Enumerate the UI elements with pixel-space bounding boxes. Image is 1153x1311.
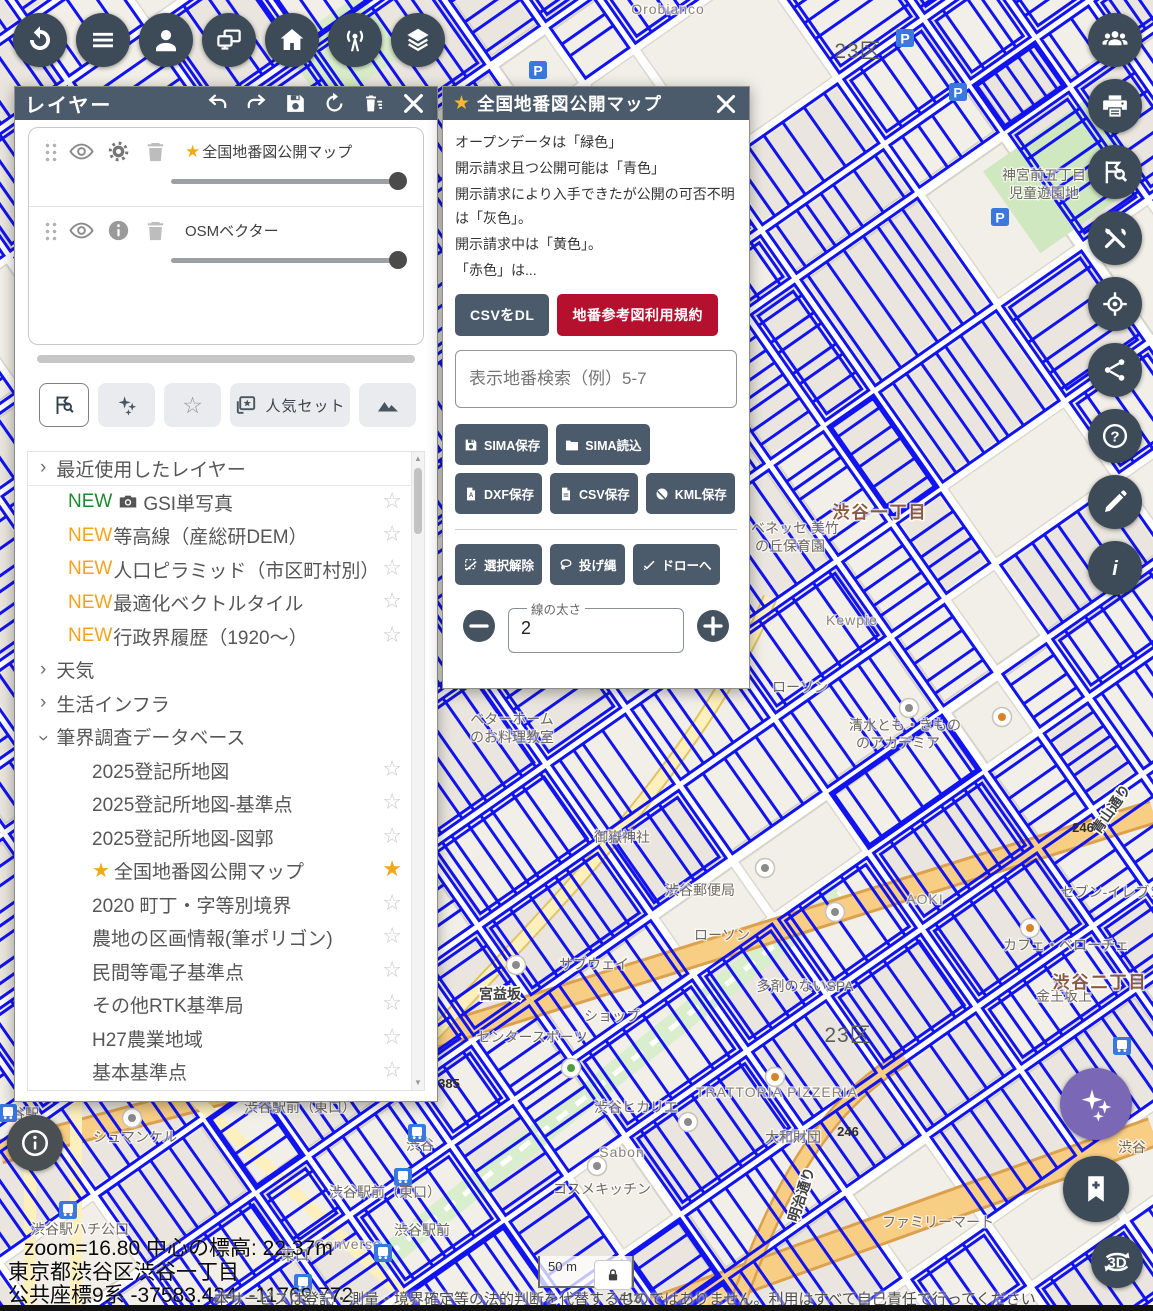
lock-icon xyxy=(604,1266,622,1284)
photo-star-icon xyxy=(234,393,258,417)
3d-rotate-icon: 3D xyxy=(1097,1242,1137,1282)
favorite-star-toggle[interactable]: ☆ xyxy=(382,992,402,1014)
scroll-down-arrow[interactable]: ▼ xyxy=(412,1077,424,1089)
poi-icon xyxy=(766,1068,785,1087)
ai-assistant-button[interactable] xyxy=(1060,1068,1132,1140)
deselect-icon xyxy=(463,557,479,573)
parking-icon: P xyxy=(991,208,1009,226)
layers-panel-title: レイヤー xyxy=(25,89,112,118)
close-icon[interactable] xyxy=(713,91,739,117)
side-locate-button[interactable] xyxy=(1088,277,1142,331)
star-outline-icon: ☆ xyxy=(182,394,203,417)
close-icon[interactable] xyxy=(400,90,427,117)
parking-icon: P xyxy=(949,83,967,101)
star-icon: ★ xyxy=(453,92,471,115)
layer-list-item[interactable]: 基本基準点☆ xyxy=(28,1055,412,1089)
vertical-scrollbar[interactable]: ▲ ▼ xyxy=(411,452,424,1090)
layer-list-item[interactable]: ›最近使用したレイヤー xyxy=(28,452,412,486)
toolbar-layers-button[interactable] xyxy=(391,13,445,67)
new-badge: NEW xyxy=(68,558,112,580)
layer-list-item[interactable]: 農地の区画情報(筆ポリゴン)☆ xyxy=(28,921,412,955)
home-icon xyxy=(277,25,307,55)
layer-list-item[interactable]: ★全国地番図公開マップ★ xyxy=(28,854,412,888)
layer-list-item[interactable]: 民間等電子基準点☆ xyxy=(28,955,412,989)
kml-icon xyxy=(654,486,670,502)
bus-stop-icon xyxy=(59,1201,77,1219)
scroll-up-arrow[interactable]: ▲ xyxy=(412,453,424,465)
favorite-star-toggle[interactable]: ★ xyxy=(382,858,402,880)
toolbar-user-button[interactable] xyxy=(139,13,193,67)
line-width-field[interactable]: 線の太さ 2 xyxy=(508,599,684,653)
remove-layer-trash-icon[interactable] xyxy=(142,217,169,244)
layer-label: ★全国地番図公開マップ xyxy=(185,141,352,162)
layer-list-item[interactable]: NEW等高線（産総研DEM）☆ xyxy=(28,519,412,553)
layer-name: 等高線（産総研DEM） xyxy=(113,522,307,549)
file-dxf-icon: A xyxy=(463,486,479,502)
csv-download-button[interactable]: CSVをDL xyxy=(455,294,549,336)
layer-name: 2020 町丁・字等別境界 xyxy=(92,891,292,918)
layer-list-item[interactable]: 2025登記所地図-基準点☆ xyxy=(28,787,412,821)
tool-sparkles-button[interactable] xyxy=(98,383,155,427)
bus-stop-icon xyxy=(394,1168,412,1186)
layer-list-item[interactable]: NEW行政界履歴（1920〜）☆ xyxy=(28,620,412,654)
layer-name: 基本基準点 xyxy=(92,1058,187,1085)
layer-name: 行政界履歴（1920〜） xyxy=(113,623,307,650)
active-layers-card: ★全国地番図公開マップOSMベクター xyxy=(28,127,424,345)
slider-thumb[interactable] xyxy=(389,172,407,190)
edit-lasso-button[interactable]: 投げ縄 xyxy=(550,544,625,585)
layers-icon xyxy=(403,25,433,55)
favorite-star-toggle[interactable]: ☆ xyxy=(382,892,402,914)
favorite-star-toggle[interactable]: ☆ xyxy=(382,590,402,612)
tools-icon xyxy=(1100,223,1130,253)
favorite-star-toggle[interactable]: ☆ xyxy=(382,490,402,512)
drag-handle-icon[interactable] xyxy=(43,140,58,164)
user-icon xyxy=(151,25,181,55)
toolbar-screen-share-button[interactable] xyxy=(202,13,256,67)
tool-label: 人気セット xyxy=(265,395,345,416)
favorite-star-toggle[interactable]: ☆ xyxy=(382,557,402,579)
menu-icon xyxy=(88,25,118,55)
layer-list-item[interactable]: 2025登記所地図☆ xyxy=(28,754,412,788)
description-line: 開示請求により入手できたが公開の可否不明は「灰色」。 xyxy=(455,182,737,230)
info-icon xyxy=(19,1127,51,1159)
bus-stop-icon xyxy=(1113,1037,1131,1055)
detail-action-buttons: CSVをDL地番参考図利用規約 xyxy=(455,294,737,336)
horizontal-scrollbar[interactable] xyxy=(37,355,415,363)
help-icon: ? xyxy=(1100,421,1130,451)
layer-catalog-list: ›最近使用したレイヤーNEWGSI単写真☆NEW等高線（産総研DEM）☆NEW人… xyxy=(27,451,425,1091)
favorite-star-toggle[interactable]: ☆ xyxy=(382,1026,402,1048)
tool-photo-star-button[interactable]: 人気セット xyxy=(230,383,350,427)
description-line: 「赤色」は... xyxy=(455,258,737,282)
line-width-value: 2 xyxy=(521,618,531,638)
layer-name: 人口ピラミッド（市区町村別） xyxy=(113,556,379,583)
map-search-icon xyxy=(52,393,76,417)
drag-handle-icon[interactable] xyxy=(43,219,58,243)
parcel-search-input[interactable] xyxy=(455,350,737,408)
edit-buttons: 選択解除投げ縄ドローへ xyxy=(455,544,737,585)
scale-label: 50 m xyxy=(548,1259,577,1274)
file-file-csv-button[interactable]: CSV保存 xyxy=(550,473,638,514)
divider xyxy=(455,529,737,530)
mountains-icon xyxy=(376,393,400,417)
bus-stop-icon xyxy=(374,1244,392,1262)
edit-deselect-button[interactable]: 選択解除 xyxy=(455,544,542,585)
bus-stop-icon xyxy=(408,1124,426,1142)
toolbar-refresh-button[interactable] xyxy=(13,13,67,67)
locate-icon xyxy=(1100,289,1130,319)
layer-name: 生活インフラ xyxy=(56,690,169,717)
map-search-icon xyxy=(1100,157,1130,187)
tool-mountains-button[interactable] xyxy=(359,383,416,427)
favorite-star-toggle[interactable]: ☆ xyxy=(382,523,402,545)
parking-icon: P xyxy=(896,29,914,47)
bookmark-add-icon xyxy=(1079,1172,1113,1206)
sparkles-icon xyxy=(115,393,139,417)
favorite-star-toggle[interactable]: ☆ xyxy=(382,758,402,780)
poi-icon xyxy=(1021,919,1040,938)
team-icon xyxy=(1100,25,1130,55)
side-help-button[interactable]: ? xyxy=(1088,409,1142,463)
favorite-star-toggle[interactable]: ☆ xyxy=(382,624,402,646)
terms-button[interactable]: 地番参考図利用規約 xyxy=(557,294,718,336)
chevron-right-icon: › xyxy=(40,457,46,479)
screen-share-icon xyxy=(214,25,244,55)
map-application: Orobianco23区神宮前五丁目児童遊園地渋谷一丁目ベネッセ 美竹の丘保育園… xyxy=(0,0,1153,1311)
map-info-button[interactable] xyxy=(7,1115,63,1171)
poi-icon xyxy=(756,859,775,878)
draw-icon xyxy=(1100,487,1130,517)
layer-name: 農地の区画情報(筆ポリゴン) xyxy=(92,924,333,951)
share-icon xyxy=(1100,355,1130,385)
layer-list-item[interactable]: H27農業地域☆ xyxy=(28,1022,412,1056)
poi-icon xyxy=(826,903,845,922)
layer-name: GSI単写真 xyxy=(143,489,233,516)
line-width-control: 線の太さ 2 xyxy=(455,599,737,653)
layers-panel-header: レイヤー xyxy=(15,87,437,120)
parking-icon: P xyxy=(529,61,547,79)
layer-name: 2025登記所地図-基準点 xyxy=(92,790,293,817)
description-line: 開示請求中は「黄色」。 xyxy=(455,232,737,256)
address-readout: 東京都渋谷区渋谷一丁目 xyxy=(8,1261,353,1285)
file-folder-open-button[interactable]: SIMA読込 xyxy=(556,424,649,465)
file-save-button[interactable]: SIMA保存 xyxy=(455,424,548,465)
layer-list-item[interactable]: NEW人口ピラミッド（市区町村別）☆ xyxy=(28,553,412,587)
remove-layer-trash-icon[interactable] xyxy=(142,138,169,165)
detail-panel-header: ★ 全国地番図公開マップ xyxy=(443,87,749,120)
bottom-bar xyxy=(0,1305,1153,1311)
poi-icon xyxy=(507,956,526,975)
layer-name: 2025登記所地図-図郭 xyxy=(92,824,274,851)
favorite-star-toggle[interactable]: ☆ xyxy=(382,1059,402,1081)
visibility-eye-icon[interactable] xyxy=(68,138,95,165)
new-badge: NEW xyxy=(68,625,112,647)
zoom-elevation-readout: zoom=16.80 中心の標高: 22.37m xyxy=(24,1237,353,1261)
layer-name: 民間等電子基準点 xyxy=(92,958,244,985)
layer-list-item[interactable]: ›筆界調査データベース xyxy=(28,720,412,754)
layer-list-item[interactable]: ›生活インフラ xyxy=(28,687,412,721)
side-team-button[interactable] xyxy=(1088,13,1142,67)
layer-list-item[interactable]: 2020 町丁・字等別境界☆ xyxy=(28,888,412,922)
chevron-down-icon: › xyxy=(32,735,54,741)
tool-star-outline-button[interactable]: ☆ xyxy=(164,383,221,427)
toolbar-broadcast-tower-button[interactable] xyxy=(328,13,382,67)
new-badge: NEW xyxy=(68,491,112,513)
star-icon: ★ xyxy=(92,858,110,883)
favorite-star-toggle[interactable]: ☆ xyxy=(382,959,402,981)
toolbar-home-button[interactable] xyxy=(265,13,319,67)
info-icon: i xyxy=(1100,553,1130,583)
poi-icon xyxy=(588,1157,607,1176)
layer-label: OSMベクター xyxy=(185,220,279,241)
visibility-eye-icon[interactable] xyxy=(68,217,95,244)
layer-name: 筆界調査データベース xyxy=(56,723,245,750)
file-file-dxf-button[interactable]: ADXF保存 xyxy=(455,473,542,514)
favorite-star-toggle[interactable]: ☆ xyxy=(382,925,402,947)
layer-detail-panel: ★ 全国地番図公開マップ オープンデータは「緑色」開示請求且つ公開可能は「青色」… xyxy=(442,86,750,689)
poi-icon xyxy=(123,1109,142,1128)
sparkles-icon xyxy=(1076,1084,1116,1124)
layer-settings-gear-icon[interactable] xyxy=(105,138,132,165)
layer-opacity-slider[interactable] xyxy=(171,179,403,184)
scrollbar-thumb[interactable] xyxy=(414,468,422,534)
save-icon xyxy=(463,437,479,453)
lock-control[interactable] xyxy=(594,1260,632,1290)
layer-list-item[interactable]: その他RTK基準局☆ xyxy=(28,988,412,1022)
camera-icon xyxy=(117,491,139,513)
layers-panel: レイヤー ★全国地番図公開マップOSMベクター ☆人気セット ›最近使用したレイ… xyxy=(14,86,438,1102)
right-toolbar: ?i xyxy=(1088,13,1142,595)
toggle-3d-button[interactable]: 3D xyxy=(1091,1236,1143,1288)
chevron-right-icon: › xyxy=(40,692,46,714)
layer-list-item[interactable]: ›天気 xyxy=(28,653,412,687)
side-map-search-button[interactable] xyxy=(1088,145,1142,199)
layer-name: 2025登記所地図 xyxy=(92,757,229,784)
bookmark-add-button[interactable] xyxy=(1063,1156,1129,1222)
layer-list-item[interactable]: 2025登記所地図-図郭☆ xyxy=(28,821,412,855)
layer-name: 全国地番図公開マップ xyxy=(114,857,304,884)
undo-icon[interactable] xyxy=(205,91,230,116)
file-buttons: SIMA保存SIMA読込ADXF保存CSV保存KML保存 xyxy=(455,424,737,514)
decrease-line-width-button[interactable] xyxy=(463,610,495,642)
print-icon xyxy=(1100,91,1130,121)
edit-draw-check-button[interactable]: ドローへ xyxy=(633,544,720,585)
slider-thumb[interactable] xyxy=(389,251,407,269)
poi-icon xyxy=(562,1059,581,1078)
broadcast-tower-icon xyxy=(340,25,370,55)
layer-name: 最近使用したレイヤー xyxy=(56,455,245,482)
layer-info-icon[interactable] xyxy=(105,217,132,244)
side-info-button[interactable]: i xyxy=(1088,541,1142,595)
file-csv-icon xyxy=(558,486,574,502)
reset-icon[interactable] xyxy=(322,91,347,116)
draw-check-icon xyxy=(641,557,657,573)
new-badge: NEW xyxy=(68,592,112,614)
lasso-icon xyxy=(558,557,574,573)
top-toolbar xyxy=(13,13,445,67)
svg-text:?: ? xyxy=(1110,429,1119,446)
save-icon[interactable] xyxy=(283,91,308,116)
side-print-button[interactable] xyxy=(1088,79,1142,133)
layer-name: 最適化ベクトルタイル xyxy=(113,589,303,616)
new-badge: NEW xyxy=(68,525,112,547)
layer-name: H27農業地域 xyxy=(92,1025,203,1052)
layer-row: ★全国地番図公開マップ xyxy=(29,128,423,206)
layer-list-item[interactable]: NEW最適化ベクトルタイル☆ xyxy=(28,586,412,620)
layers-header-actions xyxy=(205,90,427,117)
favorite-star-toggle[interactable]: ☆ xyxy=(382,825,402,847)
tool-map-search-button[interactable] xyxy=(39,383,89,427)
side-tools-button[interactable] xyxy=(1088,211,1142,265)
description-line: オープンデータは「緑色」 xyxy=(455,130,737,154)
svg-text:i: i xyxy=(1112,558,1118,580)
folder-open-icon xyxy=(564,437,580,453)
layer-opacity-slider[interactable] xyxy=(171,258,403,263)
layer-name: 天気 xyxy=(56,656,94,683)
detail-panel-title: ★ 全国地番図公開マップ xyxy=(453,91,662,116)
increase-line-width-button[interactable] xyxy=(697,610,729,642)
line-width-label: 線の太さ xyxy=(527,599,585,618)
refresh-icon xyxy=(25,25,55,55)
bus-stop-icon xyxy=(0,1104,17,1122)
poi-icon xyxy=(993,708,1012,727)
layer-tools-row: ☆人気セット xyxy=(39,383,416,427)
chevron-right-icon: › xyxy=(40,659,46,681)
side-draw-button[interactable] xyxy=(1088,475,1142,529)
redo-icon[interactable] xyxy=(244,91,269,116)
poi-icon xyxy=(679,1113,698,1132)
poi-icon xyxy=(900,699,919,718)
trash-sweep-icon[interactable] xyxy=(361,91,386,116)
file-kml-button[interactable]: KML保存 xyxy=(646,473,735,514)
legend-description: オープンデータは「緑色」開示請求且つ公開可能は「青色」開示請求により入手できたが… xyxy=(455,130,737,282)
layer-list-item[interactable]: NEWGSI単写真☆ xyxy=(28,486,412,520)
layer-row: OSMベクター xyxy=(29,206,423,284)
toolbar-menu-button[interactable] xyxy=(76,13,130,67)
favorite-star-toggle[interactable]: ☆ xyxy=(382,791,402,813)
layer-name: その他RTK基準局 xyxy=(92,991,244,1018)
side-share-button[interactable] xyxy=(1088,343,1142,397)
description-line: 開示請求且つ公開可能は「青色」 xyxy=(455,156,737,180)
